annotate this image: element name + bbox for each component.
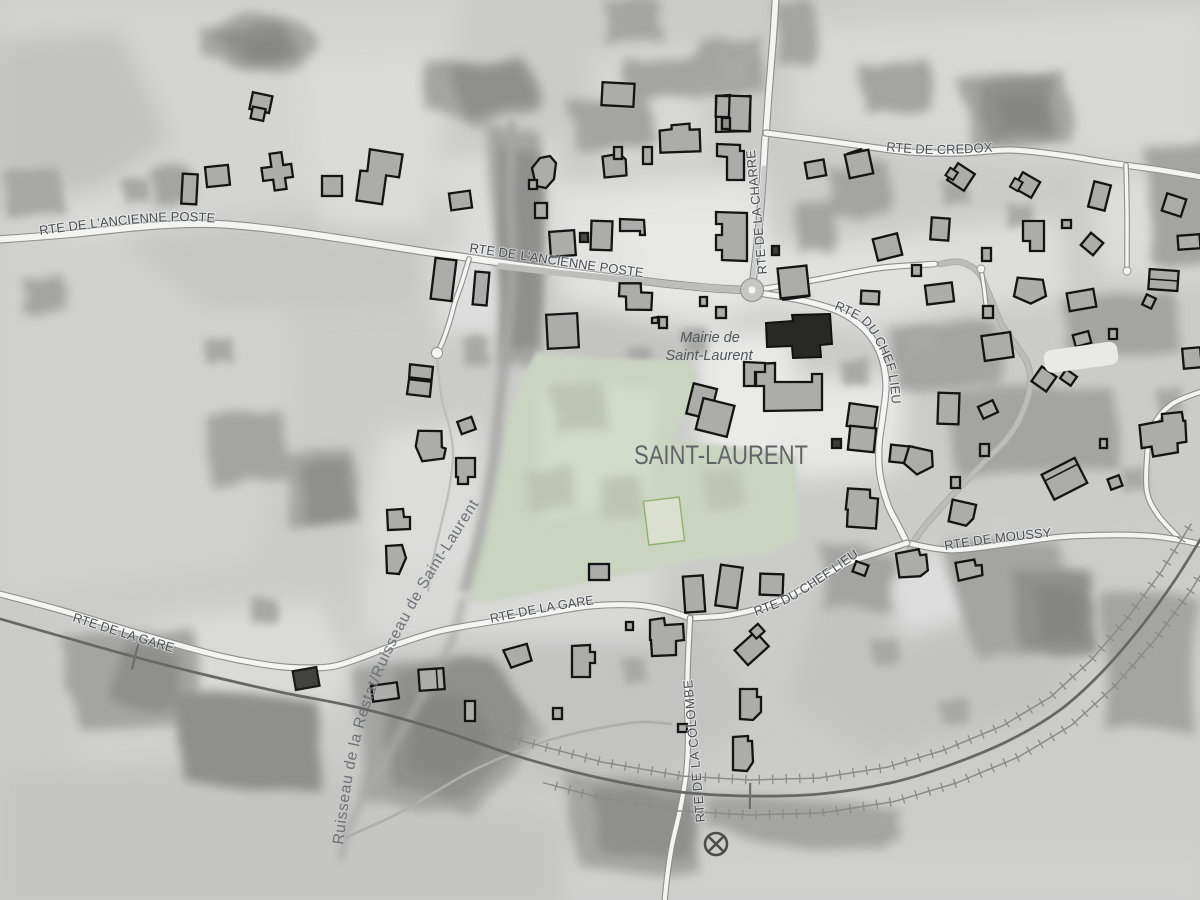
svg-text:SAINT-LAURENT: SAINT-LAURENT [634, 440, 808, 470]
svg-text:Saint-Laurent: Saint-Laurent [665, 348, 753, 364]
svg-text:Mairie de: Mairie de [680, 330, 740, 346]
